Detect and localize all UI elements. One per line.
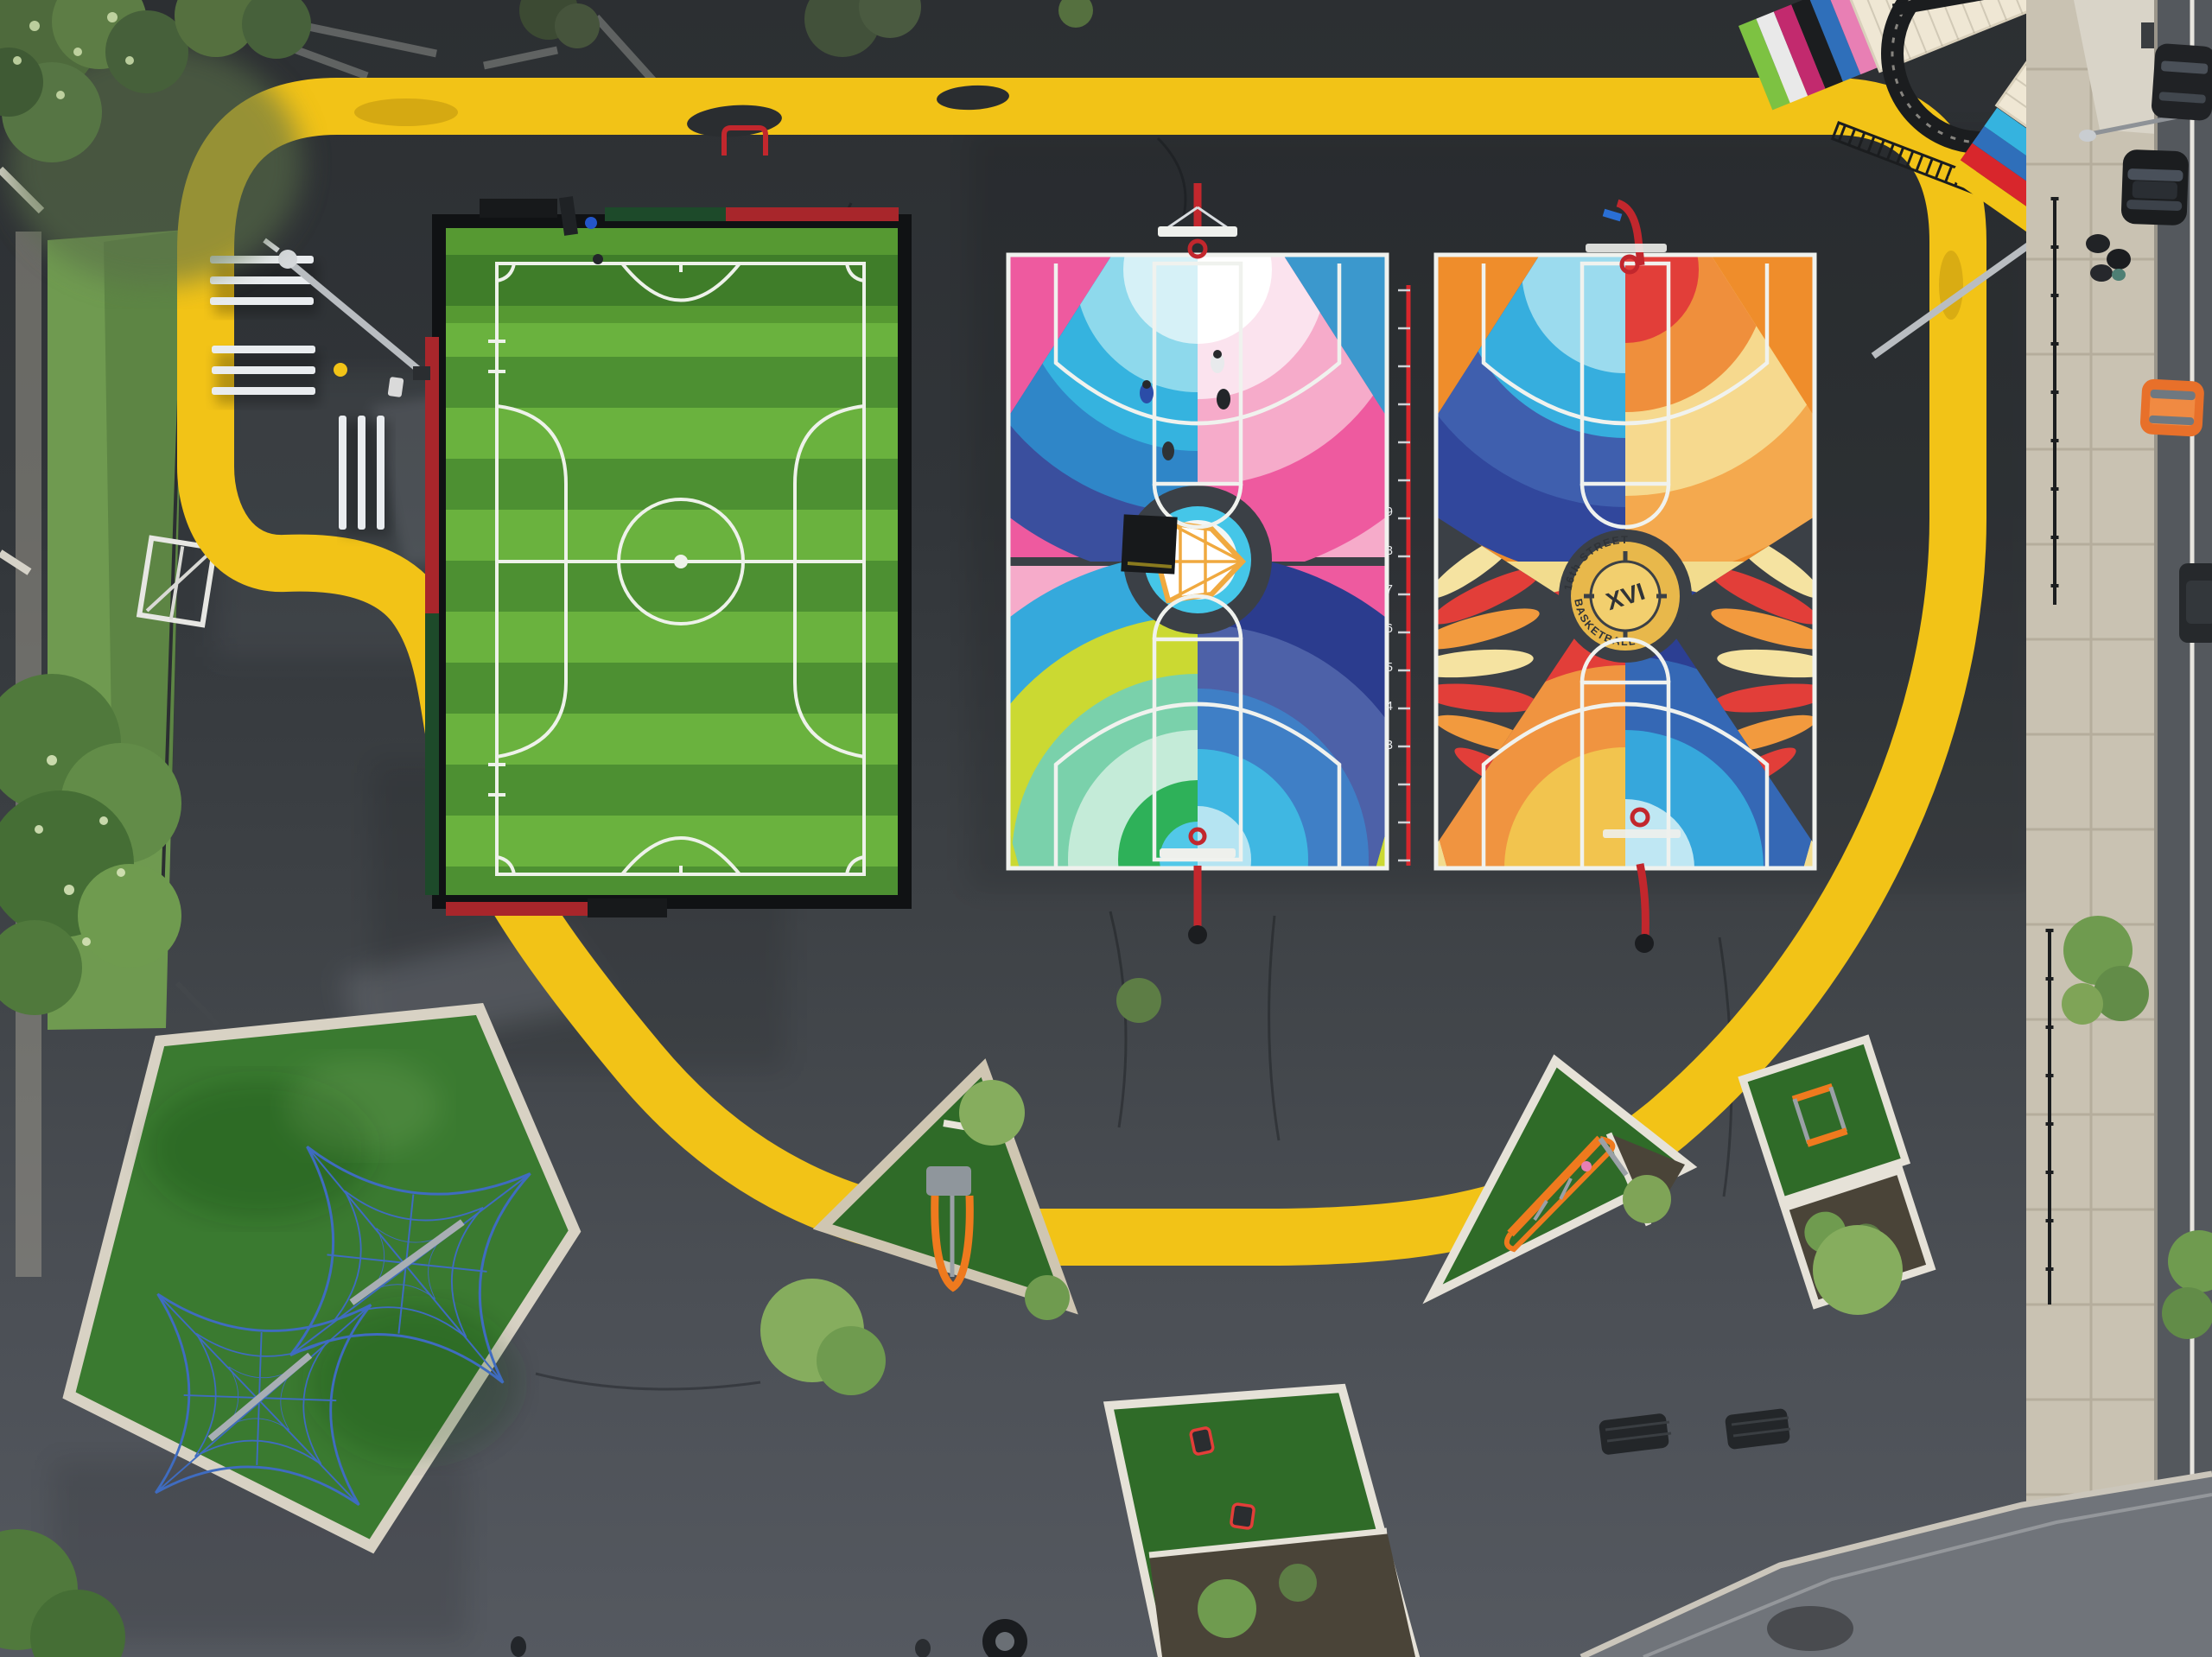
soccer-field bbox=[425, 199, 912, 917]
trapezoid-turf bbox=[1109, 1388, 1415, 1657]
svg-text:7: 7 bbox=[1386, 582, 1393, 597]
trash-can bbox=[982, 1619, 1027, 1657]
aerial-photo-stage: 9 8 7 6 5 4 3 bbox=[0, 0, 2212, 1657]
svg-text:4: 4 bbox=[1386, 699, 1393, 714]
shrub-small bbox=[1116, 978, 1161, 1023]
shrub bbox=[1198, 1579, 1256, 1638]
tree-fitness bbox=[1813, 1225, 1903, 1315]
people-bottom bbox=[511, 1636, 931, 1657]
grass-strip-shade bbox=[104, 230, 186, 782]
goal-top bbox=[480, 199, 557, 218]
goal-bottom bbox=[588, 898, 667, 917]
car-orange bbox=[2139, 378, 2204, 437]
svg-text:9: 9 bbox=[1386, 505, 1393, 519]
bench-group-2 bbox=[212, 346, 320, 404]
person bbox=[585, 217, 597, 229]
park-benches bbox=[1599, 1408, 1790, 1456]
shrub bbox=[1025, 1275, 1070, 1320]
svg-text:5: 5 bbox=[1386, 660, 1393, 675]
light-pole-shadow bbox=[177, 983, 218, 1025]
car-black bbox=[2120, 149, 2189, 226]
scene: 9 8 7 6 5 4 3 bbox=[0, 0, 2212, 1657]
svg-text:3: 3 bbox=[1386, 738, 1393, 752]
svg-text:8: 8 bbox=[1386, 543, 1393, 558]
svg-text:6: 6 bbox=[1386, 621, 1393, 636]
street bbox=[2026, 0, 2212, 1657]
shrub bbox=[1279, 1564, 1317, 1602]
sidewalk-bottom-right bbox=[1581, 1474, 2212, 1657]
car-dark-lower bbox=[2179, 563, 2212, 643]
shrub bbox=[1623, 1175, 1671, 1223]
tree-small bbox=[959, 1080, 1025, 1146]
court-info-board bbox=[1121, 514, 1177, 574]
bench-group-3 bbox=[339, 416, 391, 535]
person bbox=[1581, 1161, 1592, 1171]
triangle-turf-swings bbox=[1433, 1061, 1689, 1294]
road bbox=[2156, 0, 2212, 1657]
triangle-turf-slide bbox=[823, 1068, 1070, 1320]
car-dark-top bbox=[2151, 43, 2212, 122]
tree-mid-bottom bbox=[760, 1279, 886, 1395]
person bbox=[593, 254, 603, 264]
